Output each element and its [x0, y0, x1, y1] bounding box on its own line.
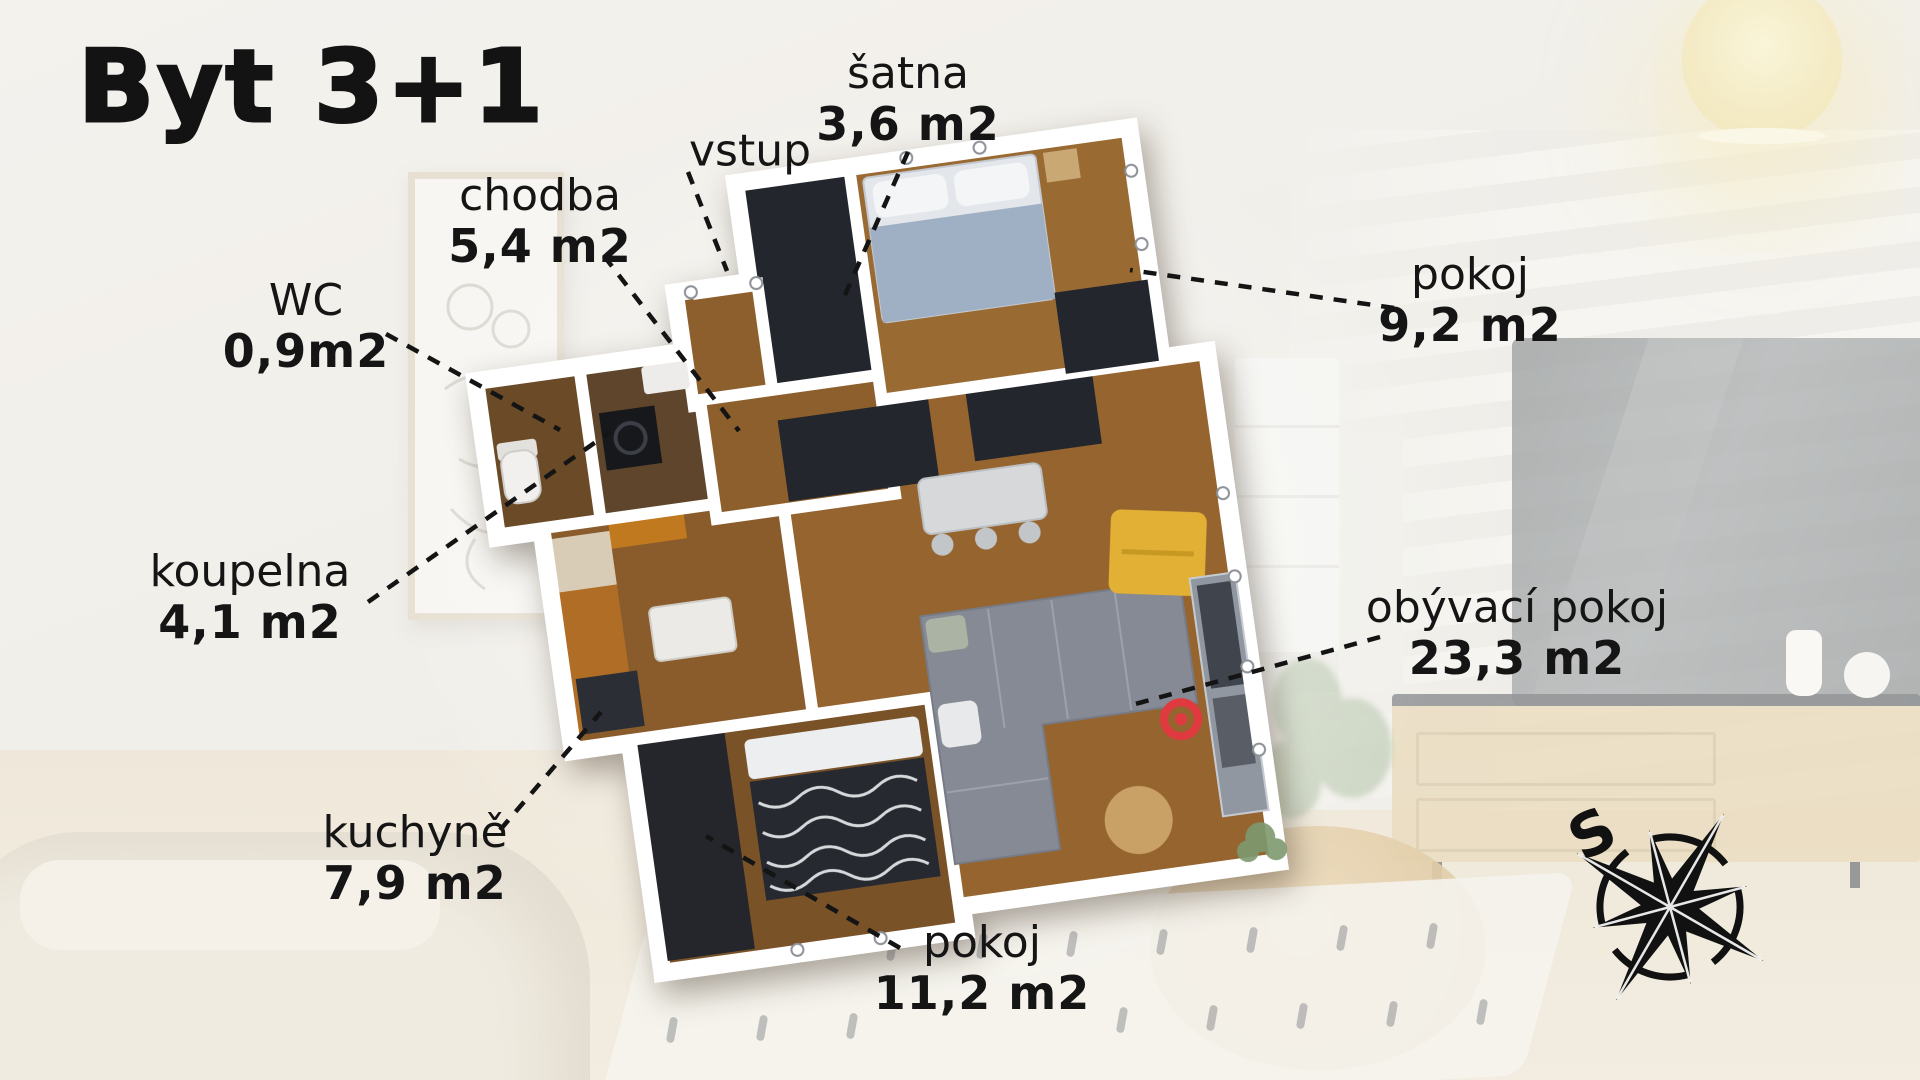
- room-area: 9,2 m2: [1378, 299, 1561, 351]
- room-area: 5,4 m2: [448, 220, 631, 272]
- room-area: 4,1 m2: [150, 596, 351, 648]
- label-koupelna: koupelna 4,1 m2: [150, 547, 351, 649]
- kitchen-table: [648, 597, 737, 662]
- washer: [599, 405, 663, 470]
- room-name: pokoj: [874, 918, 1090, 967]
- label-pokoj-small: pokoj 11,2 m2: [874, 918, 1090, 1020]
- wardrobe-dark: [1054, 280, 1158, 374]
- kitchen-counter: [552, 531, 617, 593]
- label-kuchyne: kuchyně 7,9 m2: [322, 808, 507, 910]
- room-name: vstup: [689, 126, 811, 175]
- room-name: pokoj: [1378, 250, 1561, 299]
- room-area: 3,6 m2: [816, 98, 999, 150]
- label-satna: šatna 3,6 m2: [816, 49, 999, 151]
- room-area: 11,2 m2: [874, 967, 1090, 1019]
- label-vstup: vstup: [689, 126, 811, 175]
- room-area: 7,9 m2: [322, 857, 507, 909]
- leader-vstup: [688, 172, 727, 271]
- kitchen-appliance: [576, 670, 645, 734]
- room-name: chodba: [448, 171, 631, 220]
- page-title: Byt 3+1: [78, 28, 546, 145]
- label-obyvaci: obývací pokoj 23,3 m2: [1366, 583, 1668, 685]
- leader-kuchyne: [500, 712, 601, 830]
- label-pokoj-top: pokoj 9,2 m2: [1378, 250, 1561, 352]
- leader-pokoj-top: [1130, 270, 1394, 308]
- room-name: koupelna: [150, 547, 351, 596]
- room-name: kuchyně: [322, 808, 507, 857]
- room-name: obývací pokoj: [1366, 583, 1668, 632]
- compass-rose: S: [1483, 720, 1857, 1080]
- throw-pillow: [937, 699, 983, 748]
- toilet: [499, 448, 542, 505]
- label-chodba: chodba 5,4 m2: [448, 171, 631, 273]
- room-area: 23,3 m2: [1366, 632, 1668, 684]
- label-wc: WC 0,9m2: [223, 276, 389, 378]
- room-area: 0,9m2: [223, 325, 389, 377]
- room-name: WC: [223, 276, 389, 325]
- room-name: šatna: [816, 49, 999, 98]
- nightstand: [1043, 148, 1081, 182]
- throw-pillow: [925, 614, 969, 653]
- poster-canvas: S Byt 3+1 šatna 3,6 m2 vstup chodba 5,4 …: [0, 0, 1920, 1080]
